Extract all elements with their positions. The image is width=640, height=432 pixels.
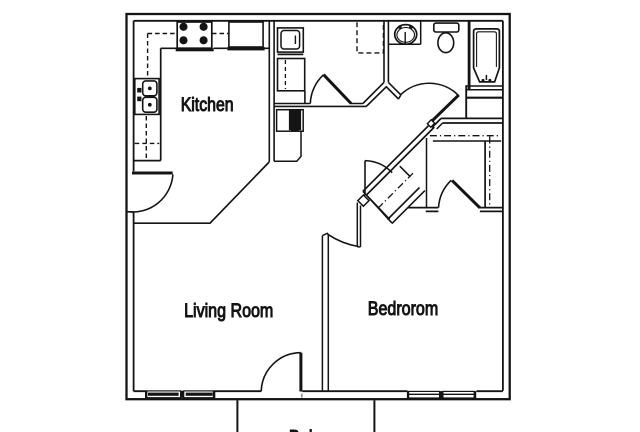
- svg-text:Kitchen: Kitchen: [181, 95, 234, 116]
- svg-text:Living Room: Living Room: [184, 301, 273, 322]
- svg-text:Balcony: Balcony: [289, 428, 347, 432]
- svg-text:Bedrorom: Bedrorom: [368, 299, 438, 320]
